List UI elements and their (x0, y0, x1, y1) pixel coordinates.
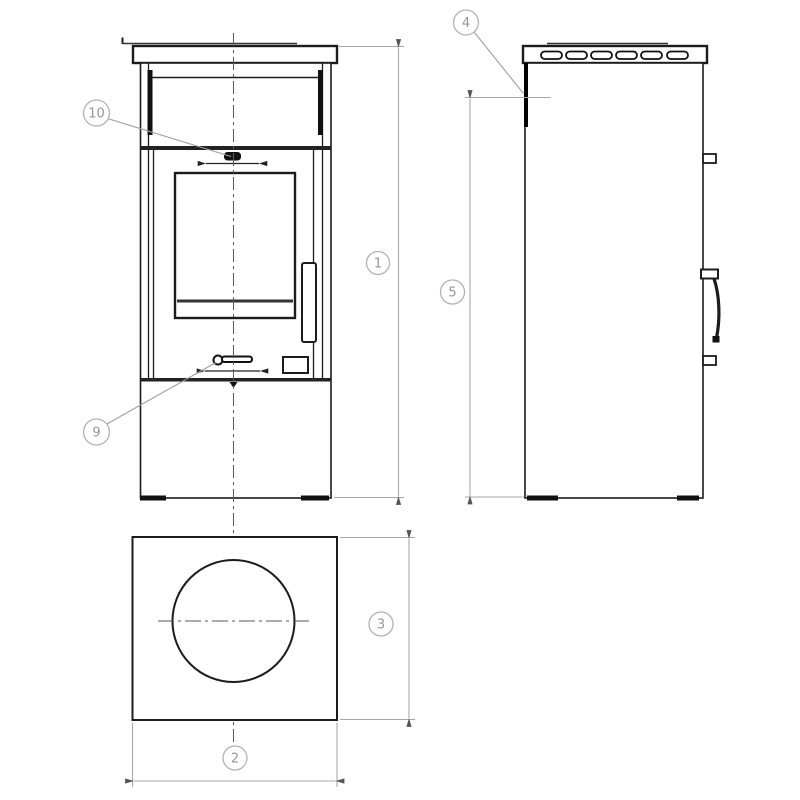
front-foot-right (301, 496, 329, 501)
callout-10-label: 10 (88, 107, 105, 122)
side-foot-left (527, 496, 558, 501)
dimension-2: 2 (133, 723, 338, 787)
side-handle-bracket (701, 270, 718, 279)
side-foot-right (677, 496, 699, 501)
front-door-bottom-band (141, 378, 331, 382)
front-door-handle (302, 263, 316, 342)
dimension-1-label: 1 (374, 257, 382, 272)
side-handle-tip (713, 336, 720, 343)
callout-4-label: 4 (462, 16, 470, 31)
dimension-3-label: 3 (377, 618, 385, 633)
secondary-air-lever (222, 357, 252, 363)
side-view (523, 44, 720, 501)
front-upper-bar-right (318, 70, 323, 135)
dimension-1: 1 (334, 47, 404, 498)
dimension-5-label: 5 (448, 286, 456, 301)
door-badge (283, 357, 308, 373)
door-glass-window (175, 173, 295, 318)
stove-technical-drawing: 1 5 3 2 (0, 0, 800, 800)
front-foot-left (140, 496, 166, 501)
side-handle-bar (714, 279, 719, 339)
callout-9-label: 9 (92, 426, 100, 441)
top-view (133, 537, 338, 720)
air-control-knob (224, 152, 241, 161)
front-top-plate (133, 46, 337, 63)
drawing-canvas: 1 5 3 2 (0, 0, 800, 800)
dimension-3: 3 (340, 538, 415, 720)
door-hinge-top (703, 154, 716, 163)
dimension-2-label: 2 (231, 752, 239, 767)
front-door-top-band (141, 146, 331, 150)
callout-4: 4 (454, 10, 524, 94)
front-upper-bar-left (148, 70, 153, 135)
door-hinge-bottom (703, 356, 716, 365)
side-body (525, 63, 703, 498)
